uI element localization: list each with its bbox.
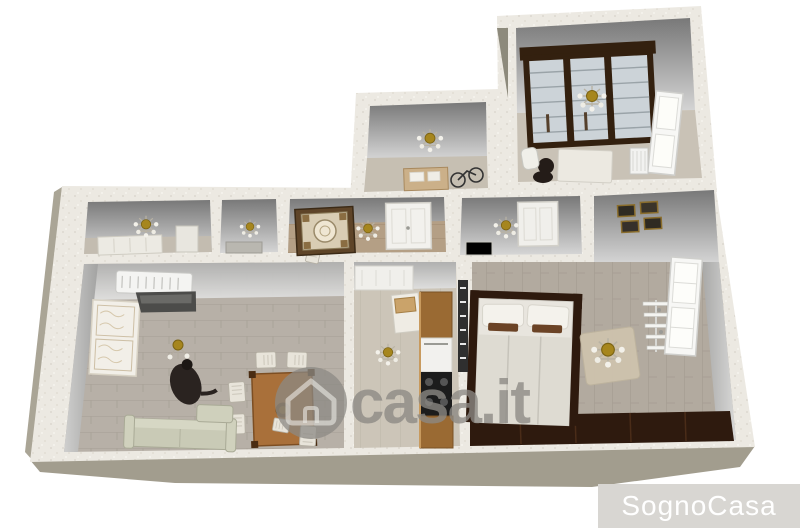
studio-desk <box>557 149 612 183</box>
utility-room <box>364 102 488 192</box>
utility-wall-face <box>367 102 487 160</box>
closet-counter <box>226 242 262 253</box>
wall-decor-panel <box>89 300 140 376</box>
floor-plan-render: casa.it SognoCasa <box>0 0 800 528</box>
dining-chair <box>299 425 316 446</box>
bedroom-window <box>665 257 703 356</box>
bed-cushion <box>488 323 518 332</box>
entry-hall <box>288 197 446 255</box>
bathroom-fixture <box>466 242 492 255</box>
brand-band: SognoCasa <box>598 484 800 528</box>
kitchen-chair <box>272 418 290 433</box>
studio-radiator <box>630 148 648 174</box>
living-room <box>64 262 344 452</box>
bedroom-radiator <box>458 280 468 372</box>
floorplan-svg <box>0 0 800 528</box>
kitchen-counter-run <box>420 292 453 448</box>
dining-chair <box>287 352 308 369</box>
cooktop <box>420 372 452 416</box>
bathroom-shelf <box>176 226 198 252</box>
utility-desk <box>404 167 449 191</box>
dining-chair <box>256 352 277 369</box>
kitchen-corner-counter <box>391 293 422 334</box>
closet-room <box>220 199 278 253</box>
brand-text: SognoCasa <box>621 490 776 522</box>
ornate-rug <box>295 207 355 256</box>
bathroom-center <box>460 196 582 255</box>
studio-chair <box>520 147 539 170</box>
studio-room <box>516 18 702 183</box>
bathroom-left <box>84 200 212 255</box>
bathroom-center-door <box>518 202 559 247</box>
double-bed <box>466 290 583 426</box>
hall-door <box>386 203 432 250</box>
bed-cushion <box>532 324 562 333</box>
dining-chair <box>228 381 245 402</box>
bathroom-cabinet <box>98 235 163 255</box>
